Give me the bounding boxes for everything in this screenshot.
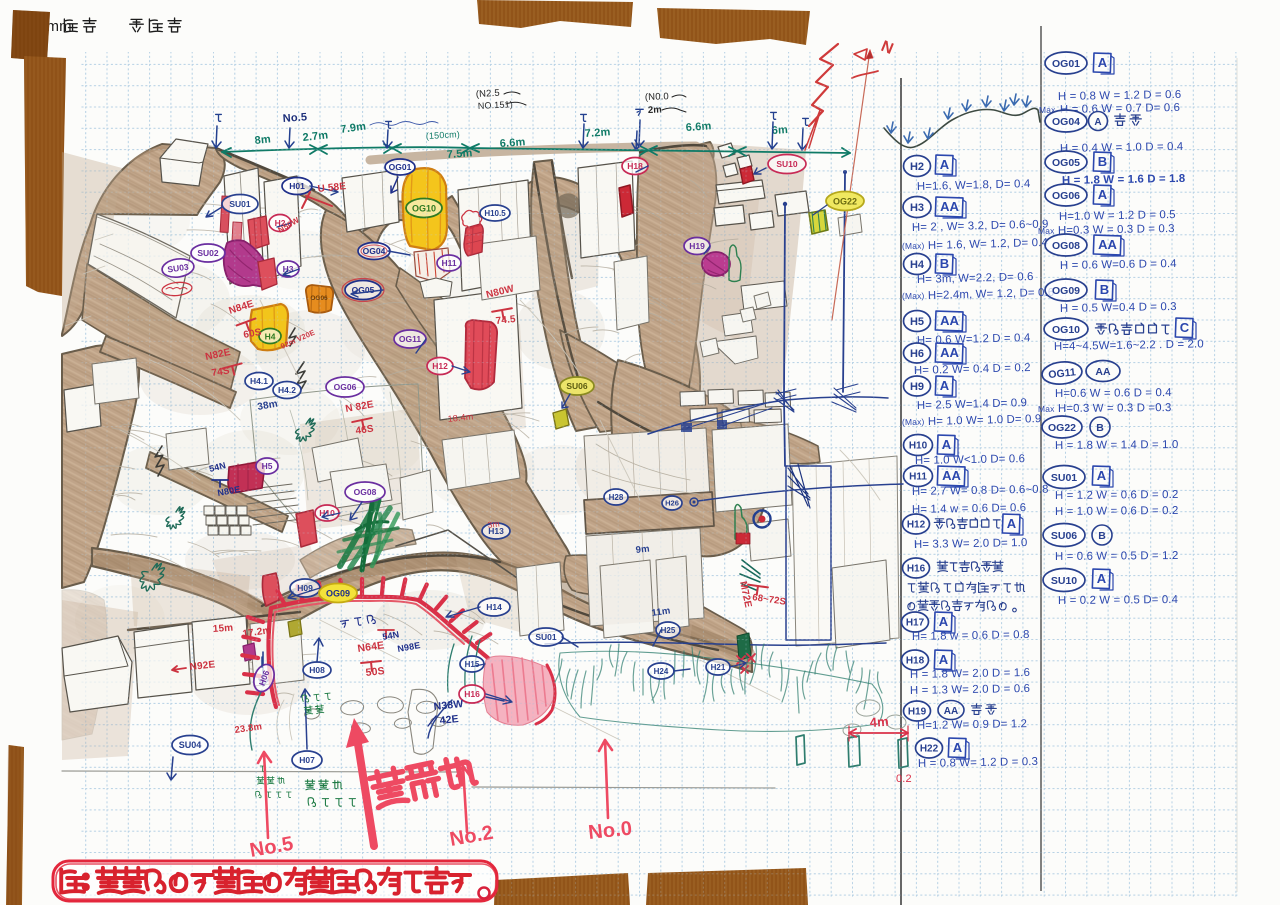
svg-text:A: A <box>940 378 950 393</box>
svg-text:H = 0.2 W = 0.5 D= 0.4: H = 0.2 W = 0.5 D= 0.4 <box>1058 594 1178 607</box>
svg-text:H15: H15 <box>465 660 480 669</box>
svg-text:A: A <box>940 157 950 172</box>
svg-text:H01: H01 <box>289 181 305 191</box>
svg-text:OG06: OG06 <box>310 295 328 302</box>
svg-text:9m: 9m <box>635 544 650 556</box>
svg-text:H11: H11 <box>909 472 927 483</box>
svg-text:H26: H26 <box>665 499 679 508</box>
svg-text:OG06: OG06 <box>1052 190 1080 202</box>
svg-text:OG09: OG09 <box>1052 285 1080 297</box>
svg-text:OG10: OG10 <box>412 204 436 214</box>
svg-text:H4: H4 <box>910 259 925 271</box>
svg-text:H= 2.7 W= 0.8 D= 0.6~0.8: H= 2.7 W= 0.8 D= 0.6~0.8 <box>912 484 1049 498</box>
svg-text:50S: 50S <box>365 665 385 679</box>
svg-text:OG10: OG10 <box>1052 324 1080 336</box>
svg-text:B: B <box>1098 154 1107 169</box>
svg-text:7.2m: 7.2m <box>584 126 611 140</box>
svg-text:H=0.6 W = 0.6 D = 0.4: H=0.6 W = 0.6 D = 0.4 <box>1055 387 1172 400</box>
svg-text:OG09: OG09 <box>326 589 350 599</box>
svg-text:SU02: SU02 <box>197 248 219 258</box>
svg-text:SU06: SU06 <box>566 381 588 391</box>
svg-text:H10: H10 <box>909 441 928 452</box>
svg-text:H=1.2 W= 0.9 D= 1.2: H=1.2 W= 0.9 D= 1.2 <box>917 718 1027 732</box>
svg-text:H = 0.8 W= 1.2 D = 0.3: H = 0.8 W= 1.2 D = 0.3 <box>918 756 1038 770</box>
svg-text:AA: AA <box>944 706 958 717</box>
svg-text:15m: 15m <box>212 623 233 635</box>
svg-text:OG05: OG05 <box>1052 157 1080 169</box>
svg-text:A: A <box>1094 117 1101 128</box>
svg-text:A: A <box>1097 571 1107 586</box>
svg-text:H= 3.3 W= 2.0 D= 1.0: H= 3.3 W= 2.0 D= 1.0 <box>914 537 1028 551</box>
svg-text:A: A <box>939 652 949 667</box>
svg-text:H = 1.2 W = 0.6 D = 0.2: H = 1.2 W = 0.6 D = 0.2 <box>1055 489 1179 502</box>
svg-text:AA: AA <box>942 468 961 483</box>
svg-text:H = 1.8 W= 2.0 D = 1.6: H = 1.8 W= 2.0 D = 1.6 <box>910 667 1030 681</box>
svg-text:(N2.5: (N2.5 <box>476 88 501 100</box>
svg-text:SU06: SU06 <box>1051 530 1077 542</box>
svg-text:H17: H17 <box>906 618 925 629</box>
svg-text:H = 0.5 W=0.4 D = 0.3: H = 0.5 W=0.4 D = 0.3 <box>1060 301 1177 315</box>
svg-text:H = 1.3 W= 2.0 D = 0.6: H = 1.3 W= 2.0 D = 0.6 <box>910 683 1030 697</box>
svg-text:A: A <box>1097 468 1107 483</box>
svg-text:OG08: OG08 <box>354 487 377 497</box>
svg-text:2m: 2m <box>648 105 662 116</box>
svg-text:Max: Max <box>1038 226 1055 236</box>
svg-text:B: B <box>940 256 949 271</box>
svg-text:AA: AA <box>940 199 959 214</box>
svg-text:SU01: SU01 <box>535 632 557 642</box>
svg-text:H24: H24 <box>654 667 669 676</box>
svg-text:H16: H16 <box>907 564 926 575</box>
svg-text:OG01: OG01 <box>389 162 412 172</box>
svg-text:NO.151): NO.151) <box>478 99 514 111</box>
svg-text:H16: H16 <box>464 689 480 699</box>
svg-text:OG04: OG04 <box>1052 116 1080 128</box>
svg-text:H25: H25 <box>661 626 676 635</box>
svg-text:AA: AA <box>1095 366 1111 378</box>
svg-text:(N0.0: (N0.0 <box>645 91 669 103</box>
svg-text:H2: H2 <box>910 161 924 173</box>
svg-text:H = 0.6 W = 0.5 D = 1.2: H = 0.6 W = 0.5 D = 1.2 <box>1055 550 1179 563</box>
svg-text:B: B <box>1096 422 1104 434</box>
svg-text:SU04: SU04 <box>179 740 202 750</box>
svg-text:H4: H4 <box>265 332 276 342</box>
svg-text:SU10: SU10 <box>1051 575 1077 587</box>
svg-text:H=0.3 W = 0.3 D =0.3: H=0.3 W = 0.3 D =0.3 <box>1058 402 1172 415</box>
svg-text:7.5m: 7.5m <box>446 147 473 161</box>
svg-text:H19: H19 <box>908 707 927 718</box>
svg-text:A: A <box>1007 516 1017 531</box>
svg-text:H22: H22 <box>920 744 939 755</box>
svg-text:A: A <box>1098 55 1108 70</box>
svg-text:H6: H6 <box>910 348 924 360</box>
svg-text:B: B <box>1100 282 1109 297</box>
svg-text:H4.1: H4.1 <box>250 376 268 386</box>
svg-text:H3: H3 <box>910 202 924 214</box>
svg-text:OG01: OG01 <box>1052 58 1080 70</box>
svg-text:H = 1.0 W = 0.6 D = 0.2: H = 1.0 W = 0.6 D = 0.2 <box>1055 505 1179 518</box>
svg-text:H11: H11 <box>441 258 456 268</box>
svg-text:C: C <box>1180 320 1190 335</box>
svg-text:(150cm): (150cm) <box>426 129 461 141</box>
svg-text:4m: 4m <box>869 714 889 730</box>
svg-text:H= 1.8 w = 0.6 D = 0.8: H= 1.8 w = 0.6 D = 0.8 <box>912 629 1030 643</box>
svg-text:H10.5: H10.5 <box>484 209 506 218</box>
svg-text:H5: H5 <box>910 316 924 328</box>
svg-text:OG22: OG22 <box>833 197 857 207</box>
svg-text:H21: H21 <box>711 663 726 672</box>
svg-text:H4.2: H4.2 <box>278 385 296 395</box>
svg-text:A: A <box>953 740 963 755</box>
svg-text:H18: H18 <box>906 656 925 667</box>
svg-text:H5: H5 <box>262 461 273 471</box>
svg-text:6.6m: 6.6m <box>685 120 712 134</box>
svg-text:H14: H14 <box>486 602 502 612</box>
svg-text:OG06: OG06 <box>334 382 357 392</box>
svg-text:74.5: 74.5 <box>495 314 516 327</box>
svg-text:H = 1.8 W = 1.6 D = 1.8: H = 1.8 W = 1.6 D = 1.8 <box>1062 173 1186 187</box>
svg-text:OG22: OG22 <box>1048 422 1076 434</box>
svg-text:(Max): (Max) <box>902 417 925 427</box>
svg-text:OG04: OG04 <box>363 246 386 256</box>
svg-text:SU01: SU01 <box>229 199 251 209</box>
svg-text:H= 1.0 W<1.0 D= 0.6: H= 1.0 W<1.0 D= 0.6 <box>915 453 1025 467</box>
svg-text:6m: 6m <box>771 124 788 137</box>
svg-text:H19: H19 <box>689 241 705 251</box>
svg-text:H12: H12 <box>432 361 448 371</box>
svg-text:A: A <box>939 614 949 629</box>
svg-text:Max: Max <box>1038 404 1055 414</box>
svg-text:H07: H07 <box>299 755 315 765</box>
svg-text:H = 0.8 W = 1.2 D = 0.6: H = 0.8 W = 1.2 D = 0.6 <box>1058 89 1182 103</box>
svg-text:A: A <box>1098 187 1108 202</box>
svg-text:No.5: No.5 <box>282 111 307 125</box>
svg-text:8m: 8m <box>254 133 271 147</box>
svg-text:AA: AA <box>940 345 959 360</box>
svg-text:H28: H28 <box>609 493 624 502</box>
svg-text:6.6m: 6.6m <box>499 136 526 150</box>
svg-text:H9: H9 <box>910 381 924 393</box>
svg-text:B: B <box>1098 530 1106 542</box>
svg-text:No.0: No.0 <box>587 817 633 843</box>
svg-text:SU10: SU10 <box>776 159 798 169</box>
svg-text:H08: H08 <box>309 665 325 675</box>
svg-text:42E: 42E <box>439 713 459 727</box>
svg-text:(Max): (Max) <box>902 241 925 251</box>
svg-text:OG11: OG11 <box>399 334 421 344</box>
svg-text:SU01: SU01 <box>1051 472 1077 484</box>
svg-text:H = 1.8 W = 1.4 D = 1.0: H = 1.8 W = 1.4 D = 1.0 <box>1055 439 1179 452</box>
svg-text:H12: H12 <box>907 520 926 531</box>
svg-text:A: A <box>942 437 952 452</box>
svg-text:(Max): (Max) <box>902 291 925 301</box>
svg-text:H=1.0 W = 1.2 D = 0.5: H=1.0 W = 1.2 D = 0.5 <box>1059 209 1176 223</box>
svg-text:H = 0.6 W=0.6 D = 0.4: H = 0.6 W=0.6 D = 0.4 <box>1060 258 1177 272</box>
svg-text:OG08: OG08 <box>1052 240 1080 252</box>
svg-text:0.2: 0.2 <box>896 773 912 785</box>
svg-text:AA: AA <box>1098 237 1117 252</box>
svg-text:3m: 3m <box>487 518 500 530</box>
svg-text:AA: AA <box>940 313 959 328</box>
